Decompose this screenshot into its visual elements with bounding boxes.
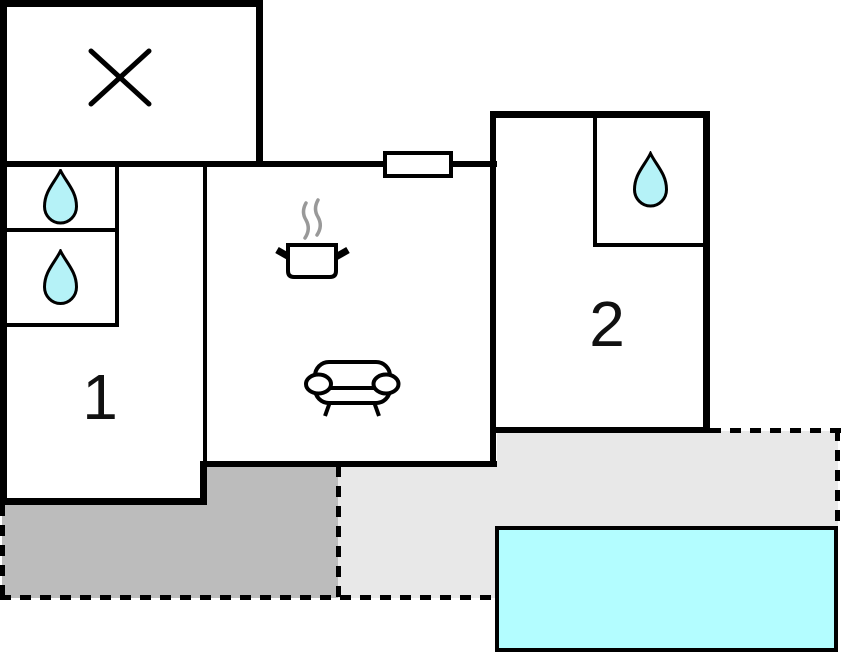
- window-icon: [383, 151, 453, 178]
- terrace-light-left: [338, 465, 497, 598]
- wall-room2-right: [703, 111, 710, 433]
- steam-icon: [304, 203, 309, 238]
- partition-room2-cell-left: [593, 114, 597, 247]
- terrace-dark-upper: [205, 465, 338, 505]
- terrace-light-right: [497, 431, 838, 531]
- wall-outer-left: [0, 0, 7, 505]
- partition-bath-cells-bottom: [0, 323, 119, 327]
- terrace-dark-lower: [2, 505, 338, 598]
- partition-bath-cells-right: [115, 163, 119, 327]
- wall-step-vertical: [200, 461, 207, 505]
- swimming-pool: [495, 526, 838, 652]
- water-drop-icon: [42, 169, 79, 225]
- wall-room2-left: [490, 111, 496, 467]
- wall-outer-top: [0, 0, 263, 7]
- dashed-boundary-left: [0, 505, 5, 598]
- dashed-boundary-right: [835, 430, 840, 530]
- wall-room1-bottom: [0, 498, 207, 505]
- wall-room2-top: [490, 111, 710, 118]
- wall-crossed-room-right: [256, 0, 263, 167]
- dashed-boundary-top-right: [710, 428, 842, 433]
- wall-living-bottom: [200, 461, 497, 467]
- wall-room2-bottom: [490, 427, 710, 433]
- water-drop-icon: [632, 151, 669, 209]
- sofa-icon: [300, 356, 405, 420]
- dashed-boundary-bottom: [0, 595, 497, 600]
- steam-icon: [316, 200, 321, 235]
- room1-label: 1: [70, 365, 130, 429]
- cooking-pot-icon: [270, 196, 355, 281]
- water-drop-icon: [42, 249, 79, 306]
- partition-bath-cells-middle: [0, 228, 119, 232]
- partition-room1-right: [203, 163, 207, 461]
- floor-plan: 1 2: [0, 0, 842, 652]
- room2-label: 2: [577, 292, 637, 356]
- partition-room2-cell-bottom: [593, 243, 710, 247]
- x-mark-icon: [85, 45, 155, 110]
- dashed-boundary-terrace-divider: [336, 466, 341, 598]
